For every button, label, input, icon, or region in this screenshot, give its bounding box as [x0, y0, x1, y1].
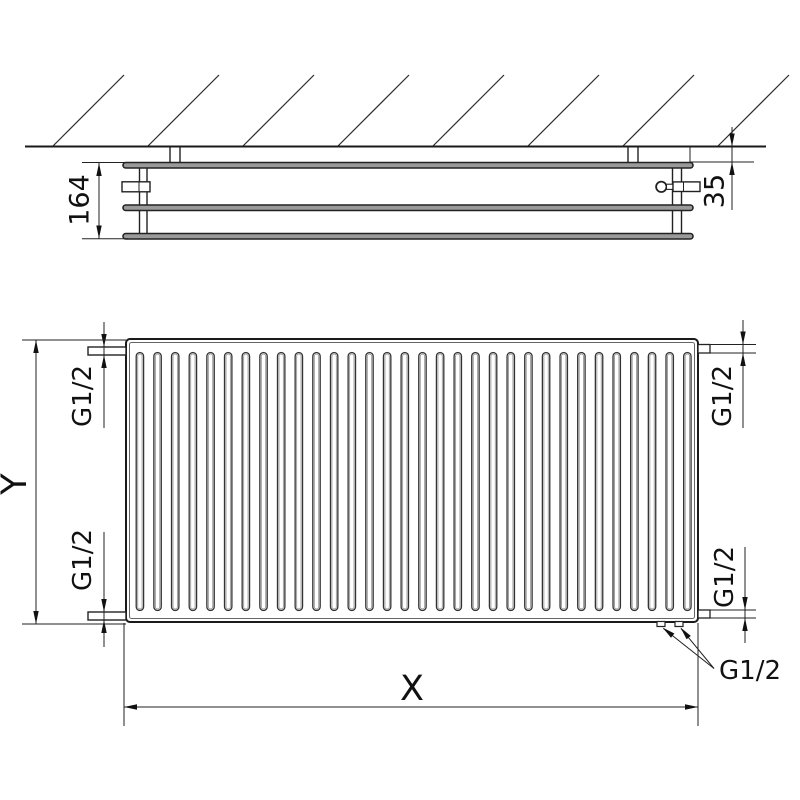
arrowhead-up-icon	[101, 355, 106, 368]
vent-body	[673, 182, 700, 192]
arrowhead-up-icon	[729, 162, 734, 175]
front-view: G1/2 G1/2 G1/2 G1/2	[0, 320, 781, 726]
hatch-line	[433, 75, 504, 146]
dim-label-x: X	[400, 669, 424, 709]
hatch-line	[338, 75, 409, 146]
arrowhead-down-icon	[729, 134, 734, 147]
bottom-tapping-left	[657, 622, 665, 627]
leader-g12-bottom-center: G1/2	[663, 628, 782, 687]
connection-stub-top-right	[698, 345, 756, 354]
leader-label-g12: G1/2	[719, 656, 781, 686]
radiator-technical-drawing: 164 35	[0, 0, 800, 800]
panel-connector-left	[140, 168, 148, 234]
arrowhead-up-icon	[96, 163, 101, 176]
hatch-line	[528, 75, 599, 146]
stub-nipple	[698, 345, 710, 354]
dim-label-y: Y	[0, 473, 35, 496]
radiator-panel-front	[123, 234, 693, 240]
dim-g12-bottom-right: G1/2	[710, 546, 748, 643]
arrowhead-up-icon	[742, 618, 747, 631]
dim-label-g12-top-right: G1/2	[708, 365, 738, 427]
bottom-tapping-right	[675, 622, 683, 627]
dim-label-35: 35	[700, 174, 731, 208]
mounting-bracket-right	[628, 147, 638, 163]
radiator-panel-back	[123, 163, 693, 169]
hatch-line	[623, 75, 694, 146]
dim-g12-bottom-left: G1/2	[68, 529, 107, 647]
stub-nipple	[698, 610, 710, 618]
dim-depth-164: 164	[65, 163, 129, 239]
vent-knob-icon	[656, 182, 666, 192]
arrowhead-down-icon	[101, 599, 106, 612]
dim-label-g12-bottom-right: G1/2	[710, 546, 740, 608]
blanking-plug	[122, 182, 150, 192]
dim-width-x: X	[124, 623, 698, 726]
arrowhead-up-icon	[101, 620, 106, 633]
arrowhead-down-icon	[96, 226, 101, 239]
arrowhead-left-icon	[124, 704, 137, 709]
connection-stub-top-left	[88, 347, 126, 355]
top-view: 164 35	[25, 75, 789, 239]
plug-body	[122, 182, 150, 192]
arrowhead-down-icon	[33, 611, 38, 624]
arrowhead-up-icon	[33, 340, 38, 353]
connection-stub-bottom-right	[698, 610, 756, 618]
hatch-line	[718, 75, 789, 146]
hatch-line	[243, 75, 314, 146]
connection-stub-bottom-left	[88, 612, 126, 620]
vent-stem	[667, 184, 674, 189]
panel-connector-right	[673, 168, 682, 234]
air-vent-valve	[656, 182, 700, 192]
dim-label-164: 164	[65, 174, 96, 226]
hatch-line	[148, 75, 219, 146]
wall-hatching	[53, 75, 789, 146]
arrowhead-down-icon	[742, 597, 747, 610]
arrowhead-right-icon	[685, 704, 698, 709]
dim-g12-top-left: G1/2	[68, 322, 107, 428]
dim-height-y: Y	[0, 340, 126, 624]
arrowhead-down-icon	[740, 332, 745, 345]
arrowhead-up-icon	[740, 353, 745, 366]
dim-wall-gap-35: 35	[690, 127, 754, 210]
hatch-line	[53, 75, 124, 146]
dim-g12-top-right: G1/2	[708, 320, 746, 428]
dim-label-g12-bottom-left: G1/2	[68, 529, 98, 591]
dim-label-g12-top-left: G1/2	[68, 365, 98, 427]
mounting-bracket-left	[170, 147, 180, 163]
arrowhead-upleft-icon	[681, 628, 691, 640]
radiator-panel-middle	[123, 205, 693, 211]
